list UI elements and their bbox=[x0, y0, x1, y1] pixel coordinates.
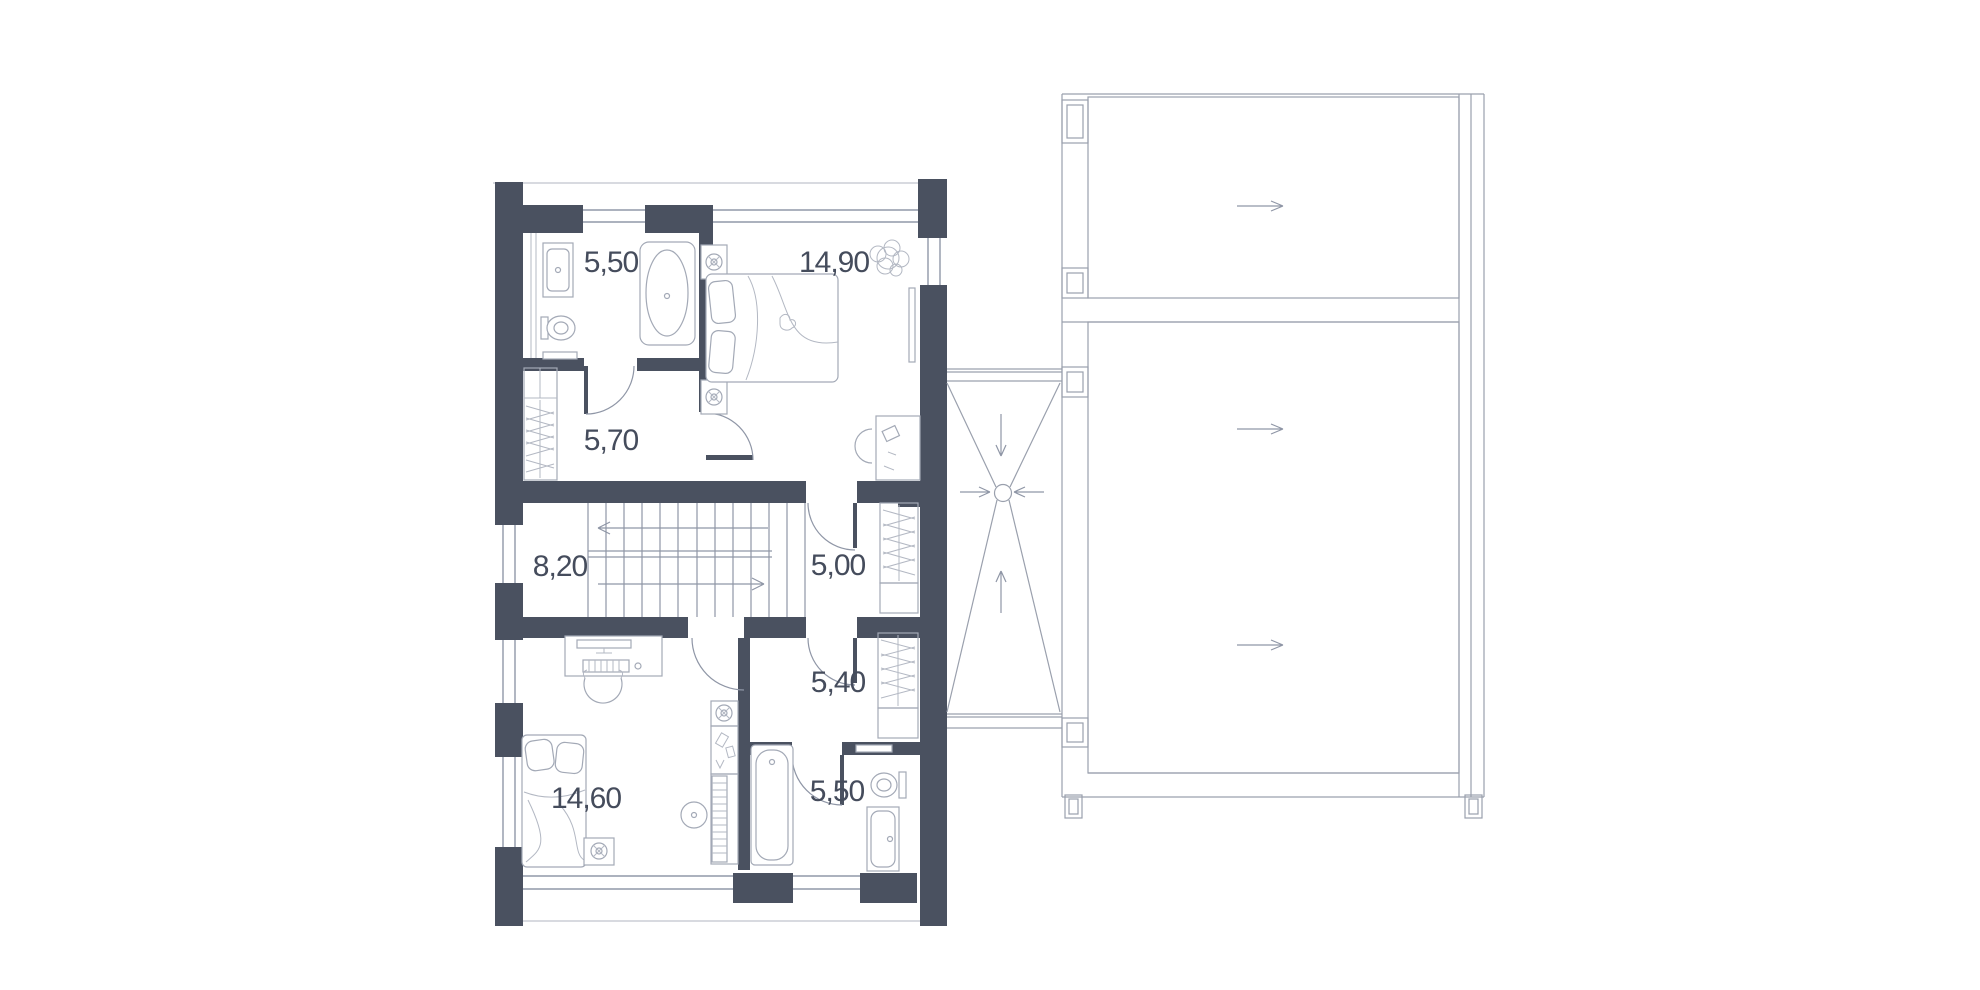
post-icon bbox=[1065, 795, 1082, 818]
chimney-icon bbox=[1062, 268, 1088, 298]
drain-arrow-up bbox=[996, 571, 1006, 613]
drain-arrow-right bbox=[960, 487, 990, 497]
closet-wardrobe bbox=[880, 503, 918, 613]
chimney-icon bbox=[1062, 100, 1088, 143]
hall-lower-wardrobe bbox=[878, 633, 918, 738]
desk-chair-icon bbox=[855, 429, 872, 463]
shelf-icon bbox=[543, 352, 577, 359]
nightstand-icon bbox=[584, 838, 614, 865]
roof-slope-arrow bbox=[1237, 640, 1283, 650]
tv-icon bbox=[909, 288, 915, 362]
stair-direction-arrow-down bbox=[598, 578, 764, 590]
floor-plan-page: 5,50 14,90 5,70 8,20 5,00 5,40 14,60 5,5… bbox=[0, 0, 1980, 990]
shower-icon bbox=[867, 807, 899, 871]
roof-slope-arrow bbox=[1237, 201, 1283, 211]
room-area-label-hall-lower: 5,40 bbox=[811, 666, 866, 699]
plant-icon bbox=[870, 240, 909, 276]
room-area-label-closet: 5,00 bbox=[811, 549, 866, 582]
staircase bbox=[588, 503, 805, 617]
desk-icon bbox=[565, 636, 662, 676]
bathtub-icon bbox=[751, 745, 793, 865]
hall-upper-wardrobe bbox=[524, 368, 557, 480]
drain-arrow-left bbox=[1014, 487, 1044, 497]
floor-plan-drawing: 5,50 14,90 5,70 8,20 5,00 5,40 14,60 5,5… bbox=[0, 0, 1980, 990]
chimney-icon bbox=[1062, 718, 1088, 747]
room-area-label-bathroom-lower: 5,50 bbox=[810, 775, 865, 808]
toilet-icon bbox=[871, 772, 906, 798]
chimney-icon bbox=[1062, 367, 1088, 397]
toilet-icon bbox=[541, 316, 575, 340]
shelf-icon bbox=[856, 745, 892, 752]
utility-strip bbox=[711, 701, 738, 864]
bedroom-lower-furniture bbox=[522, 636, 707, 867]
room-area-label-hall-upper: 5,70 bbox=[584, 424, 639, 457]
stool-icon bbox=[681, 802, 707, 828]
room-area-label-bedroom-upper: 14,90 bbox=[799, 246, 869, 279]
sink-icon bbox=[543, 243, 573, 297]
room-area-label-bedroom-lower: 14,60 bbox=[551, 782, 621, 815]
roof-drain-icon bbox=[995, 485, 1012, 502]
drain-arrow-down bbox=[996, 414, 1006, 456]
roof-slope-arrow bbox=[1237, 424, 1283, 434]
nightstand-icon bbox=[701, 380, 727, 414]
post-icon bbox=[1465, 795, 1482, 818]
double-bed-icon bbox=[706, 274, 838, 382]
room-area-label-staircase: 8,20 bbox=[533, 550, 588, 583]
flat-roof-drain-area bbox=[947, 369, 1062, 728]
roof-plan bbox=[1062, 94, 1484, 818]
bathroom-lower-fixtures bbox=[751, 745, 906, 871]
desk-icon bbox=[876, 416, 920, 480]
bathtub-icon bbox=[640, 242, 695, 345]
room-area-label-bathroom-upper: 5,50 bbox=[584, 246, 639, 279]
